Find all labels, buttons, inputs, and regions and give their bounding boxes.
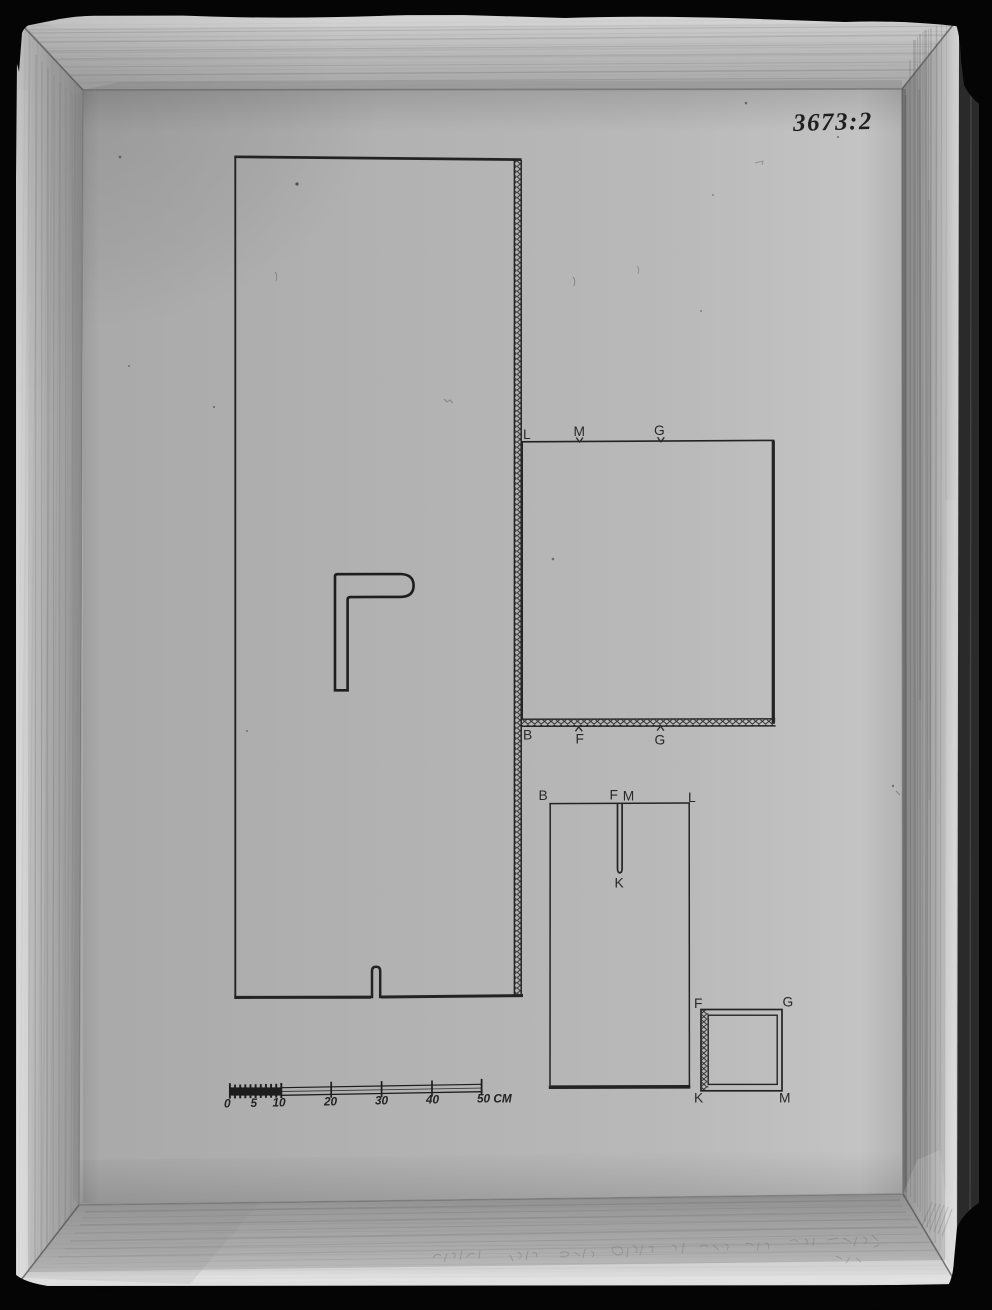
svg-text:3673:2: 3673:2	[792, 108, 874, 137]
svg-text:G: G	[655, 733, 666, 748]
svg-text:5: 5	[251, 1096, 258, 1110]
svg-text:0: 0	[224, 1097, 231, 1111]
svg-text:M: M	[779, 1091, 791, 1106]
svg-text:F: F	[694, 996, 702, 1011]
svg-text:F: F	[576, 732, 584, 747]
svg-text:30: 30	[375, 1094, 389, 1108]
svg-text:B: B	[539, 788, 548, 803]
svg-text:F: F	[610, 788, 618, 803]
svg-text:L: L	[523, 427, 531, 442]
svg-text:40: 40	[425, 1093, 440, 1107]
svg-text:G: G	[783, 995, 794, 1010]
svg-text:20: 20	[323, 1095, 338, 1109]
svg-text:K: K	[615, 876, 625, 891]
svg-text:50 CM: 50 CM	[477, 1092, 513, 1106]
svg-text:K: K	[694, 1091, 704, 1106]
svg-text:L: L	[688, 790, 696, 805]
svg-text:M: M	[623, 789, 635, 804]
svg-text:B: B	[523, 728, 532, 743]
svg-text:10: 10	[273, 1096, 287, 1110]
svg-text:M: M	[574, 424, 586, 439]
svg-text:G: G	[654, 423, 665, 438]
